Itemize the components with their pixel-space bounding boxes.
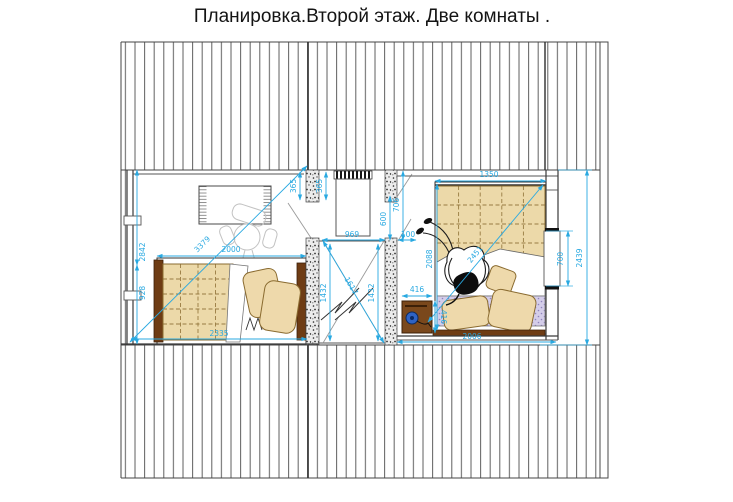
dim-label-1350: 1350 <box>479 170 498 179</box>
footboard <box>433 330 545 336</box>
dim-label-2000: 2000 <box>221 245 240 254</box>
dim-label-416a: 416 <box>410 285 425 294</box>
wardrobe <box>336 179 370 236</box>
nightstand <box>402 301 432 333</box>
dim-label-1432b: 1432 <box>367 283 376 302</box>
floor-plan-drawing: Планировка.Второй этаж. Две комнаты . <box>0 0 733 502</box>
deck-right-edge-strip <box>600 42 608 478</box>
stairwell-block <box>288 170 412 345</box>
stair-wall-right <box>385 238 397 345</box>
dim-label-2335: 2335 <box>209 329 228 338</box>
dim-label-365a: 365 <box>289 179 298 194</box>
dim-label-600: 600 <box>379 212 388 227</box>
dim-label-706: 706 <box>392 198 401 213</box>
dim-label-365b: 365 <box>315 179 324 194</box>
wall-stud-marker <box>124 216 141 225</box>
bed-left <box>154 258 306 344</box>
dim-label-100: 100 <box>401 230 416 239</box>
dim-label-2088: 2088 <box>425 249 434 268</box>
hatched-column-right <box>385 170 397 202</box>
dim-label-2439: 2439 <box>575 248 584 267</box>
floor-plan-page: Планировка.Второй этаж. Две комнаты . <box>0 0 733 502</box>
dim-label-1432a: 1432 <box>319 283 328 302</box>
wall-section-hatch <box>334 171 372 179</box>
pillow <box>258 279 301 334</box>
dim-label-969: 969 <box>345 230 360 239</box>
page-title: Планировка.Второй этаж. Две комнаты . <box>194 6 550 27</box>
dim-label-416b: 416 <box>439 310 448 325</box>
dim-label-2006: 2006 <box>462 332 481 341</box>
left-room <box>154 186 306 344</box>
stair-wall-left <box>306 238 319 345</box>
dim-label-2842: 2842 <box>138 242 147 261</box>
dim-label-928: 928 <box>138 286 147 301</box>
deck-top-band <box>121 42 600 170</box>
dim-label-3379: 3379 <box>192 234 212 254</box>
stair-break-band <box>321 288 373 320</box>
deck-bottom-band <box>121 345 600 478</box>
headboard <box>154 260 163 342</box>
deck-left-eave <box>121 170 127 345</box>
dim-label-700: 700 <box>556 252 565 267</box>
